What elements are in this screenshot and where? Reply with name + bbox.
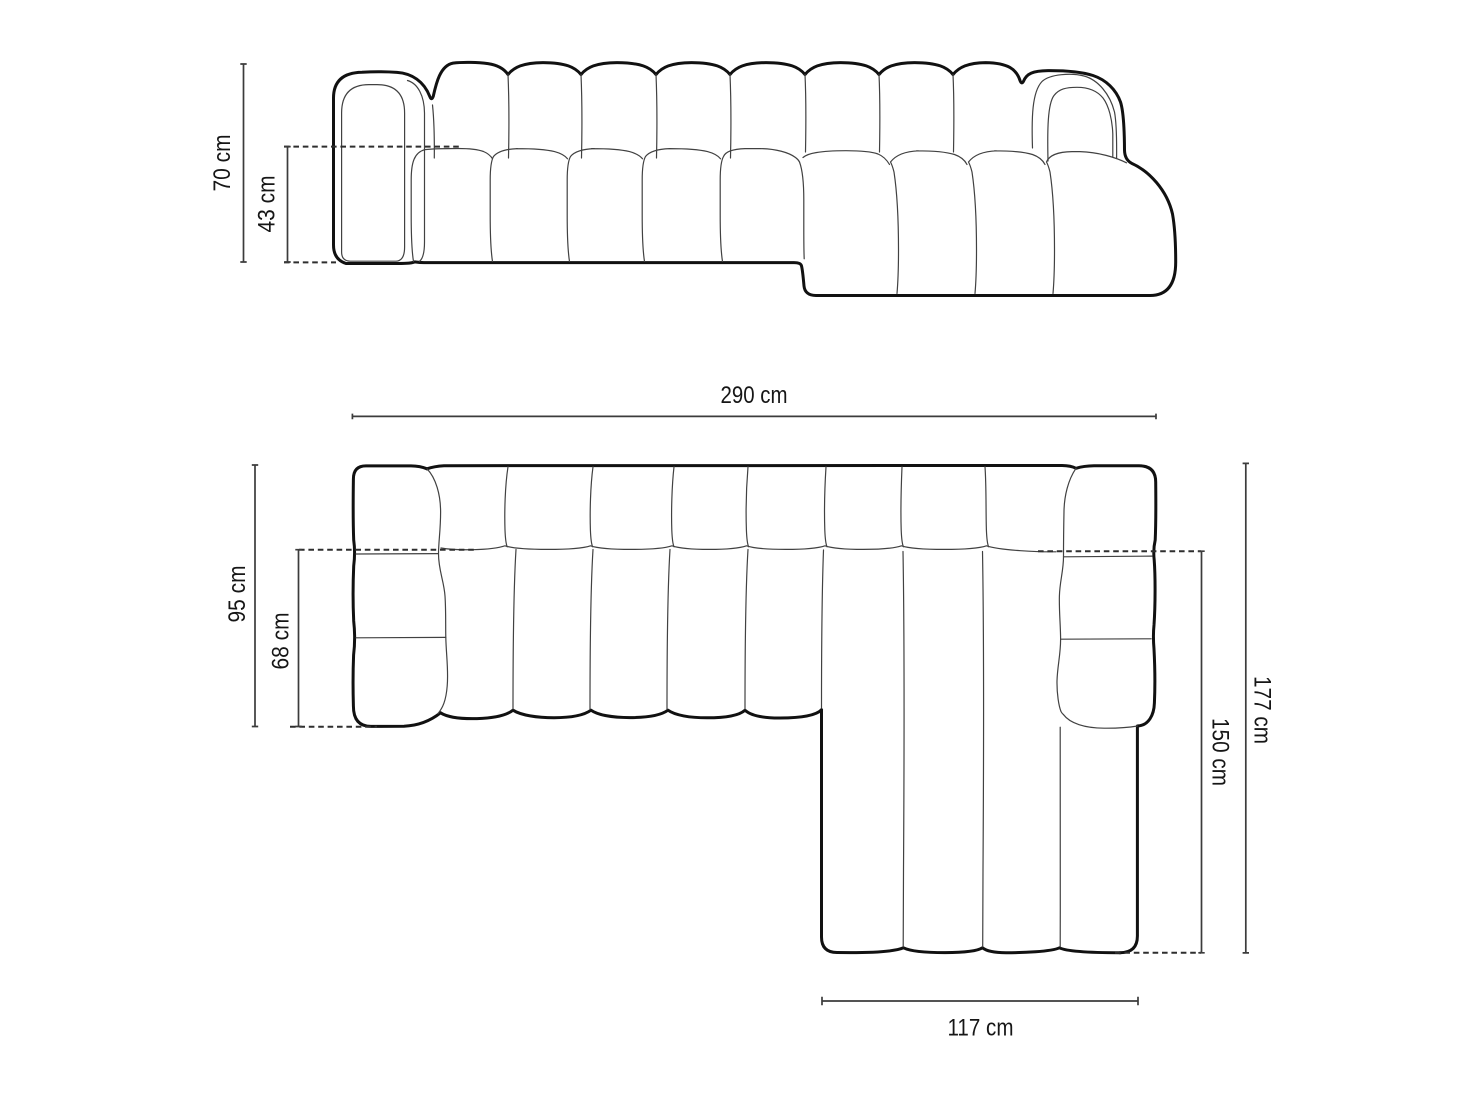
- svg-text:117 cm: 117 cm: [948, 1015, 1014, 1042]
- svg-text:150 cm: 150 cm: [1207, 718, 1234, 786]
- svg-text:68 cm: 68 cm: [268, 613, 295, 670]
- svg-text:70 cm: 70 cm: [209, 135, 236, 192]
- svg-text:95 cm: 95 cm: [224, 566, 251, 623]
- svg-text:43 cm: 43 cm: [254, 176, 281, 233]
- svg-text:290 cm: 290 cm: [721, 382, 788, 409]
- svg-text:177 cm: 177 cm: [1249, 676, 1276, 744]
